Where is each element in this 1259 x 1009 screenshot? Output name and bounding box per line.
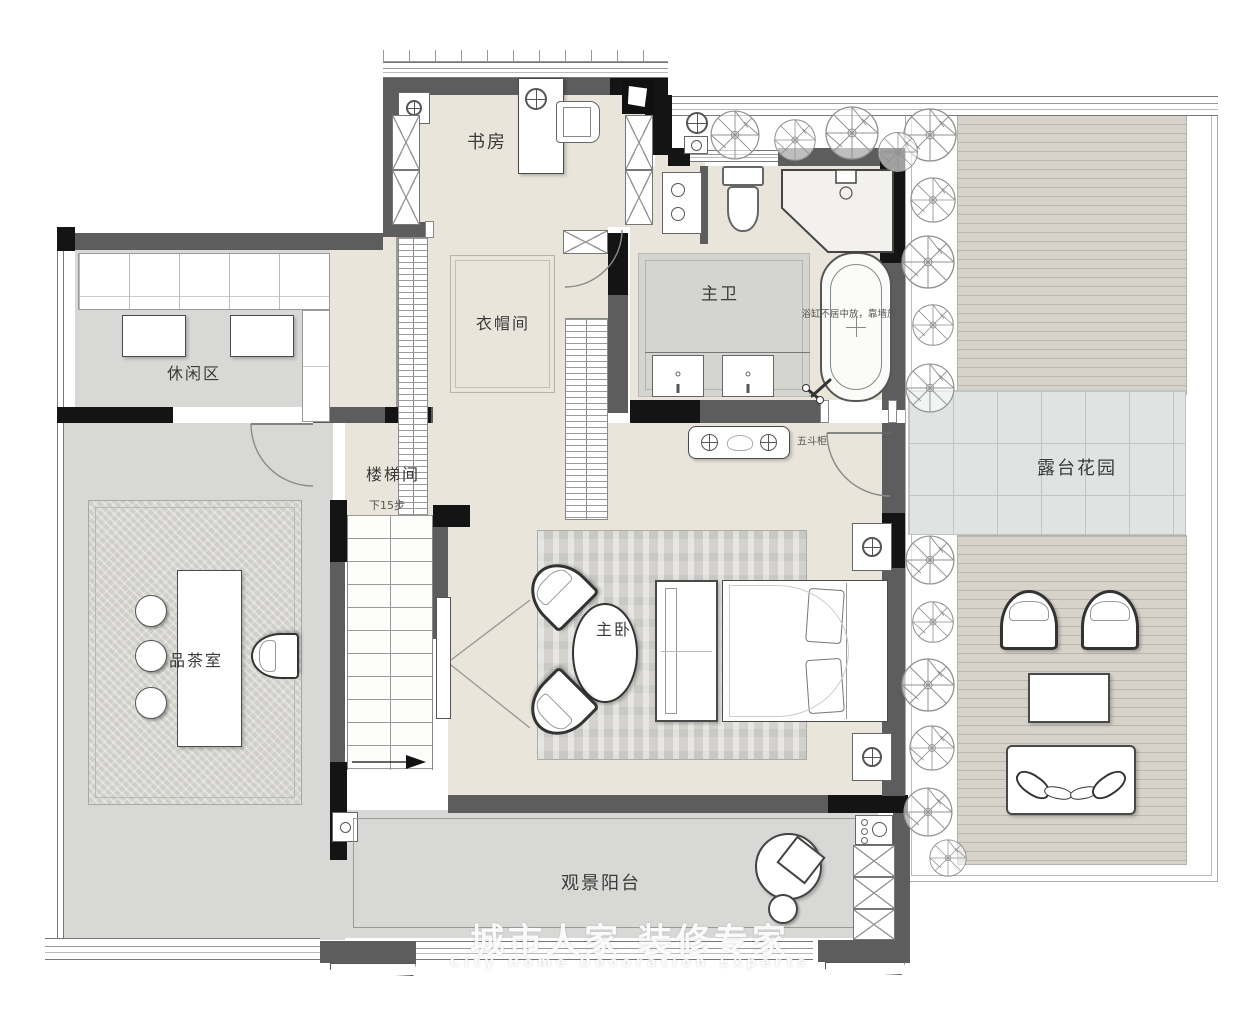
leisure-window-seat-right: [302, 310, 330, 422]
wall-balcony-bottom: [818, 940, 910, 962]
balcony-floor-left-join: [333, 860, 345, 940]
wall-bedroom-top: [700, 400, 827, 423]
bath-label: 主卫: [701, 280, 739, 305]
balcony-label: 观景阳台: [561, 869, 641, 895]
vanity-sink-2: [722, 355, 774, 397]
study-window-monitor: [622, 80, 655, 114]
terrace-deck-top: [957, 105, 1187, 395]
stair-door-leaf: [436, 597, 451, 719]
wall-stair-left-black-top: [330, 500, 347, 562]
wall-bedroom-bottom-black: [828, 795, 908, 813]
window-band-above-study-2: [383, 62, 668, 78]
window-left-leisure: [57, 251, 64, 417]
wall-bedroom-top-black: [630, 400, 700, 423]
study-cabinet-left-1: [392, 115, 420, 170]
tea-stool-2: [135, 640, 167, 672]
dresser: [688, 426, 790, 459]
stairwell-steps-note: 下15步: [369, 497, 405, 513]
bath-note: 浴缸不居中放，靠墙放: [801, 306, 896, 320]
closet-cabinet-top: [563, 230, 608, 254]
wall-stair-left-black-bottom: [330, 762, 347, 860]
balcony-round-chair: [755, 833, 822, 900]
balcony-cabinet-1: [853, 845, 895, 877]
leisure-window-seat: [78, 253, 330, 310]
wall-stair-left: [330, 562, 345, 762]
tea-room-label: 品茶室: [169, 647, 223, 671]
wall-bottom-block: [320, 941, 416, 963]
terrace-label: 露台花园: [1037, 454, 1117, 480]
bedroom-label: 主卧: [596, 616, 632, 640]
window-band-above-study: [383, 50, 668, 62]
door-jamb-bedroom-1: [820, 400, 829, 423]
nightstand-bottom: [852, 733, 892, 781]
tea-stool-3: [135, 687, 167, 719]
window-band-top-right: [660, 96, 1218, 116]
door-jamb-study: [425, 221, 434, 238]
window-band-bottom-left: [45, 938, 320, 960]
terrace-coffee-table: [1028, 673, 1110, 723]
study-label: 书房: [467, 128, 507, 154]
closet-label: 衣帽间: [476, 310, 530, 334]
leisure-table-2: [230, 315, 294, 357]
study-chair: [556, 101, 600, 143]
wall-bath-top: [778, 148, 882, 166]
nightstand-top: [852, 523, 892, 571]
door-jamb-bedroom-2: [888, 400, 897, 423]
wall-closet-bath: [608, 295, 628, 413]
wall-stair-bedroom-black: [433, 505, 470, 527]
leisure-table-1: [122, 315, 186, 357]
stairwell-label: 楼梯间: [366, 461, 420, 485]
wall-leisure-bottom-black: [57, 407, 173, 423]
study-desk-lamp: [525, 88, 547, 110]
toilet-tank: [722, 166, 764, 186]
study-cabinet-right-2: [625, 170, 653, 225]
bed-bench: [655, 580, 718, 722]
wall-leisure-corner: [57, 227, 75, 251]
dresser-label: 五斗柜: [797, 433, 827, 448]
wall-bedroom-bottom: [448, 795, 828, 813]
wall-balcony-bottom-cap: [825, 962, 905, 975]
window-left-tea: [57, 423, 64, 940]
toilet-bowl: [727, 186, 759, 232]
wall-bottom-block-cap: [330, 963, 416, 976]
nook-drain: [686, 112, 708, 134]
wall-leisure-top: [75, 233, 383, 250]
nook-shelf: [662, 172, 702, 234]
leisure-label: 休闲区: [167, 360, 221, 384]
tea-stool-1: [135, 595, 167, 627]
study-cabinet-left-2: [392, 170, 420, 225]
watermark-underline: [688, 972, 766, 977]
nook-sink: [684, 136, 708, 154]
closet-rack-right: [565, 318, 608, 520]
watermark-en: City Home Decoration Experts: [450, 956, 810, 971]
balcony-counter-sink: [855, 815, 893, 845]
wall-closet-bath-black: [608, 233, 628, 295]
floor-plan: 露台花园: [0, 0, 1259, 1009]
wall-bath-right-black: [880, 148, 905, 263]
bed: [722, 580, 888, 722]
terrace-sofa: [1006, 745, 1136, 815]
balcony-cabinet-2: [853, 877, 895, 909]
balcony-cabinet-3: [853, 909, 895, 940]
study-cabinet-right-1: [625, 115, 653, 170]
staircase: [347, 515, 433, 770]
bathtub: [820, 252, 892, 402]
wall-bedroom-right-1: [882, 423, 905, 513]
vanity-sink-1: [652, 355, 704, 397]
